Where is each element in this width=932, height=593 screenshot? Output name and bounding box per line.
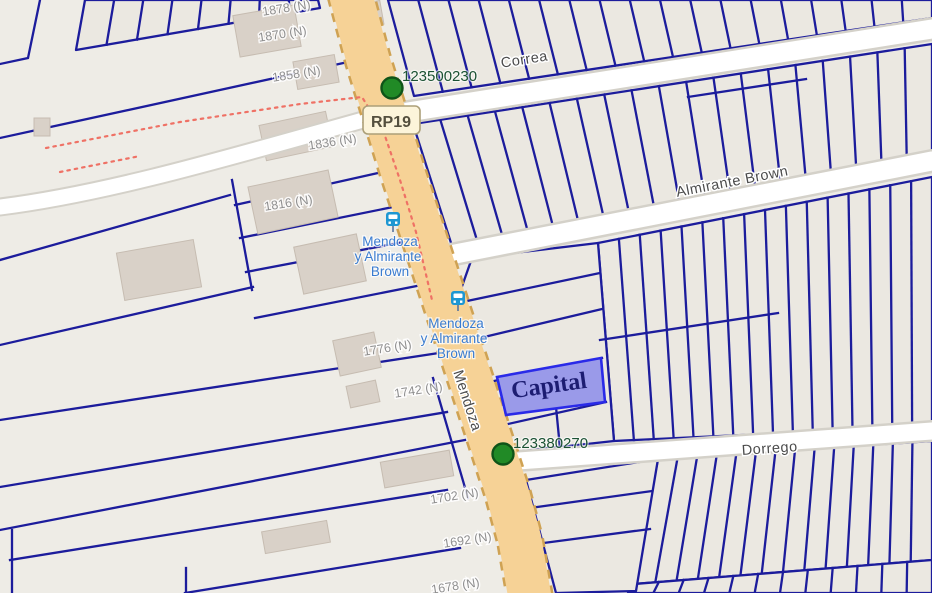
green-node-marker[interactable]	[382, 78, 403, 99]
parcel-line	[911, 181, 912, 427]
parcel-line	[881, 564, 882, 593]
marker-id-label: 123500230	[402, 68, 477, 85]
bus-stop-label: y Almirante	[421, 331, 488, 346]
map-svg: Capital Correa Almirante Brown Dorrego M…	[0, 0, 932, 593]
bus-icon-window	[454, 294, 463, 299]
parcel-line	[856, 566, 858, 593]
marker-id-label: 123380270	[513, 435, 588, 452]
bus-icon-light	[395, 222, 397, 224]
building	[34, 118, 50, 136]
parcel-line	[907, 562, 908, 593]
route-badge-text: RP19	[371, 114, 411, 131]
bus-icon-light	[460, 301, 462, 303]
bus-icon-light	[454, 301, 456, 303]
bus-stop-label: Mendoza	[428, 316, 484, 331]
bus-stop-label: Mendoza	[362, 234, 418, 249]
bus-icon-light	[389, 222, 391, 224]
bus-stop-label: Brown	[371, 264, 409, 279]
bus-stop-label: Brown	[437, 346, 475, 361]
bus-stop-label: y Almirante	[355, 249, 422, 264]
map-canvas[interactable]: Capital Correa Almirante Brown Dorrego M…	[0, 0, 932, 593]
parcel-line	[902, 0, 903, 22]
route-badge-rp19: RP19	[363, 106, 420, 134]
green-node-marker[interactable]	[493, 444, 514, 465]
bus-icon-window	[389, 215, 398, 220]
